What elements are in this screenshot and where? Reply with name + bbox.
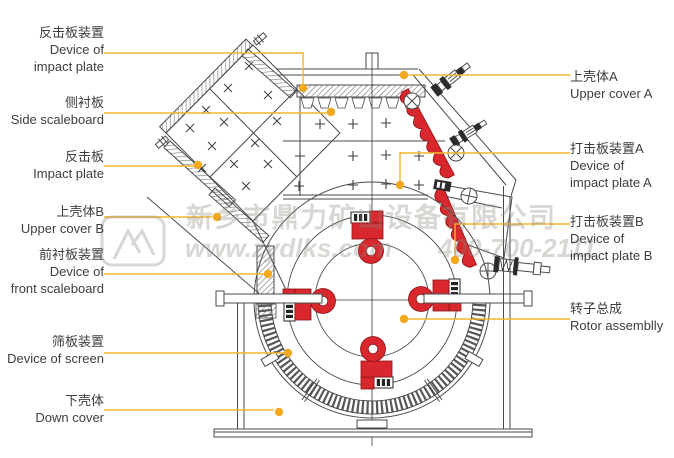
impact-plate-strips: [154, 31, 296, 243]
label-side-scaleboard: 侧衬板 Side scaleboard: [0, 94, 104, 128]
label-zh: 转子总成: [570, 300, 674, 317]
label-upper-cover-b: 上壳体B Upper cover B: [0, 203, 104, 237]
spring-bolt: [493, 255, 551, 279]
label-en: Impact plate: [0, 165, 104, 182]
impact-plate-device-a: [400, 59, 489, 178]
label-en: Device of impact plate B: [570, 230, 674, 264]
label-zh: 反击板: [0, 148, 104, 165]
label-zh: 上壳体B: [0, 203, 104, 220]
label-en: Device of screen: [0, 350, 104, 367]
label-device-of-impact-plate-b: 打击板装置B Device of impact plate B: [570, 213, 674, 264]
label-device-of-impact-plate-a: 打击板装置A Device of impact plate A: [570, 140, 674, 191]
label-upper-cover-a: 上壳体A Upper cover A: [570, 68, 674, 102]
label-en: Device of impact plate A: [570, 157, 674, 191]
label-zh: 下壳体: [0, 392, 104, 409]
label-en: Upper cover A: [570, 85, 674, 102]
label-en: Upper cover B: [0, 220, 104, 237]
label-device-of-screen: 筛板装置 Device of screen: [0, 333, 104, 367]
label-down-cover: 下壳体 Down cover: [0, 392, 104, 426]
label-en: Device of impact plate: [0, 41, 104, 75]
label-zh: 打击板装置B: [570, 213, 674, 230]
label-zh: 上壳体A: [570, 68, 674, 85]
label-zh: 反击板装置: [0, 24, 104, 41]
label-en: Rotor assemblly: [570, 317, 674, 334]
label-zh: 筛板装置: [0, 333, 104, 350]
label-en: Side scaleboard: [0, 111, 104, 128]
impact-plate-device-b: [433, 179, 551, 279]
label-zh: 侧衬板: [0, 94, 104, 111]
label-en: Device of front scaleboard: [0, 263, 104, 297]
label-device-of-front-scaleboard: 前衬板装置 Device of front scaleboard: [0, 246, 104, 297]
label-en: Down cover: [0, 409, 104, 426]
label-device-of-impact-plate: 反击板装置 Device of impact plate: [0, 24, 104, 75]
label-impact-plate: 反击板 Impact plate: [0, 148, 104, 182]
label-zh: 前衬板装置: [0, 246, 104, 263]
leader-lines: [104, 53, 570, 410]
crusher-structure-diagram: 新乡市鼎力矿山设备有限公司 www.zydlks.com400-700-2111…: [0, 0, 674, 458]
label-rotor-assembly: 转子总成 Rotor assemblly: [570, 300, 674, 334]
label-zh: 打击板装置A: [570, 140, 674, 157]
